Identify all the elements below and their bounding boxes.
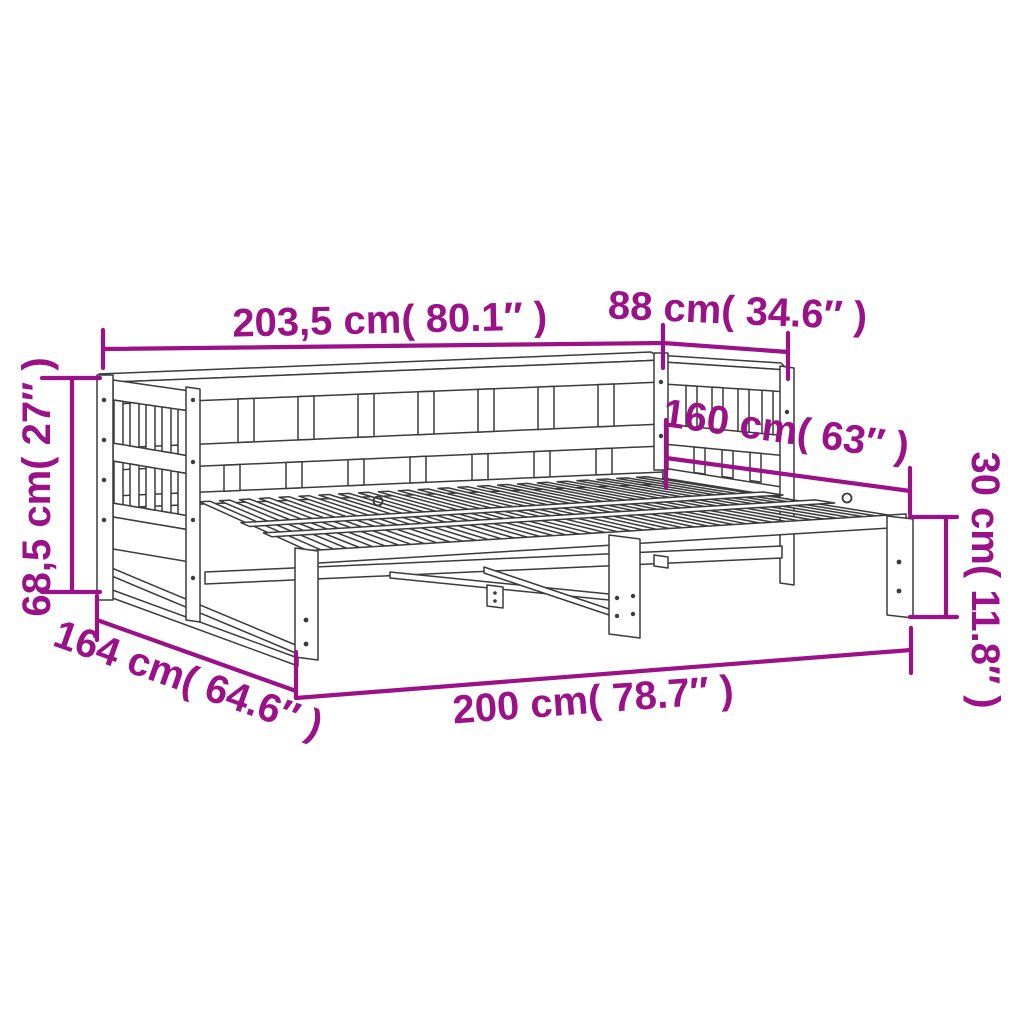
panel-slat — [224, 465, 240, 492]
panel-slat — [162, 469, 171, 513]
screw — [615, 596, 619, 600]
screw — [897, 589, 902, 594]
panel-slat — [286, 462, 302, 489]
dim-label-height-overall: 68,5 cm( 27″ ) — [15, 357, 59, 616]
panel-slat — [146, 405, 155, 450]
screw — [191, 518, 195, 522]
panel-slat — [358, 394, 374, 438]
screw — [615, 614, 619, 618]
panel-slat — [130, 464, 139, 508]
screw — [304, 618, 309, 623]
panel-slat — [348, 459, 364, 486]
panel-slat — [162, 407, 171, 453]
screw — [493, 599, 497, 603]
dim-label-depth-extended: 164 cm( 64.6″ ) — [48, 612, 328, 747]
panel-slat — [472, 454, 488, 481]
diagram-canvas: 203,5 cm( 80.1″ ) 88 cm( 34.6″ ) 68,5 cm… — [0, 0, 1024, 1024]
glide-block — [654, 555, 668, 568]
panel-slat — [114, 400, 123, 445]
screw — [191, 576, 195, 580]
panel-slat — [418, 391, 434, 435]
screw — [493, 591, 497, 595]
trundle-mid-leg — [609, 535, 640, 638]
panel-slat — [130, 402, 139, 447]
screw — [191, 398, 195, 402]
panel-slat — [598, 384, 614, 427]
back-left-post — [97, 375, 113, 600]
screw — [897, 560, 902, 565]
dim-line — [103, 343, 663, 349]
panel-slat — [114, 461, 123, 505]
screw — [631, 594, 635, 598]
daybed-dimension-diagram: 203,5 cm( 80.1″ ) 88 cm( 34.6″ ) 68,5 cm… — [0, 0, 1024, 1024]
screw — [659, 380, 663, 384]
dim-trundle-length: 200 cm( 78.7″ ) — [296, 628, 911, 733]
panel-slat — [750, 452, 761, 482]
dim-height-overall: 68,5 cm( 27″ ) — [15, 357, 100, 616]
under-frame — [107, 546, 782, 666]
screw — [631, 612, 635, 616]
panel-slat — [410, 456, 426, 483]
panel-slat — [238, 398, 254, 442]
dim-label-length-overall: 203,5 cm( 80.1″ ) — [232, 294, 548, 345]
panel-slat — [596, 448, 612, 475]
panel-slat — [146, 467, 155, 511]
panel-slat — [298, 396, 314, 440]
pull-hook — [843, 494, 852, 503]
dim-label-trundle-height: 30 cm( 11.8″ ) — [963, 451, 1007, 708]
front-left-post — [186, 387, 200, 622]
screw — [102, 398, 106, 402]
panel-slat — [478, 389, 494, 432]
dim-line — [663, 343, 788, 352]
center-leg — [487, 585, 503, 608]
screw — [102, 518, 106, 522]
screw — [102, 478, 106, 482]
screw — [304, 642, 309, 647]
panel-slat — [534, 451, 550, 478]
screw — [102, 438, 106, 442]
dim-label-trundle-length: 200 cm( 78.7″ ) — [451, 668, 735, 733]
screw — [191, 460, 195, 464]
panel-slat — [538, 386, 554, 429]
dim-trundle-height: 30 cm( 11.8″ ) — [910, 451, 1007, 708]
trundle-right-board — [887, 516, 913, 618]
bed-line-drawing — [97, 352, 913, 666]
dim-label-depth-side: 88 cm( 34.6″ ) — [607, 283, 868, 338]
